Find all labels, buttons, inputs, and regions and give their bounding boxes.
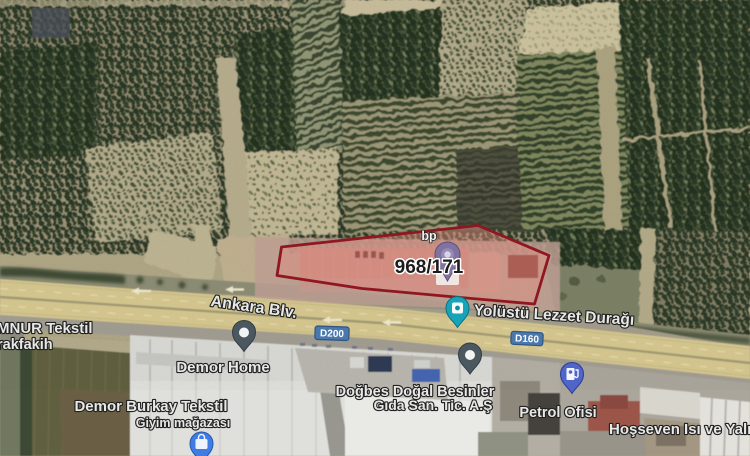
svg-text:MNUR Tekstil: MNUR Tekstil bbox=[0, 320, 93, 337]
svg-text:rakfakih: rakfakih bbox=[0, 337, 53, 353]
svg-text:Demor Home: Demor Home bbox=[176, 359, 269, 376]
svg-text:Gıda San. Tic. A.Ş: Gıda San. Tic. A.Ş bbox=[373, 397, 492, 413]
svg-text:Hoşseven Isı ve Yalıt: Hoşseven Isı ve Yalıt bbox=[609, 421, 750, 438]
svg-text:D200: D200 bbox=[320, 328, 345, 340]
svg-text:968/171: 968/171 bbox=[395, 257, 464, 278]
svg-text:D160: D160 bbox=[515, 333, 540, 345]
svg-text:Petrol Ofisi: Petrol Ofisi bbox=[519, 405, 596, 421]
svg-text:Demor Burkay Tekstil: Demor Burkay Tekstil bbox=[74, 398, 227, 415]
svg-text:bp: bp bbox=[421, 229, 437, 243]
svg-text:Giyim mağazası: Giyim mağazası bbox=[136, 416, 231, 430]
